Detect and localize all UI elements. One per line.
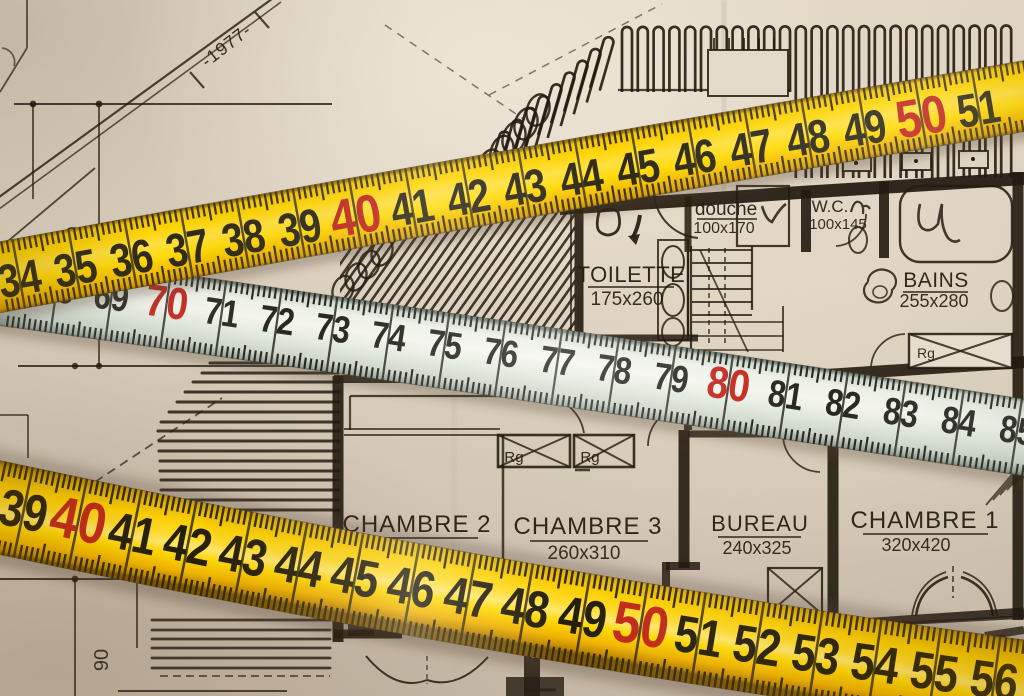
svg-text:BAINS: BAINS xyxy=(903,269,969,292)
svg-text:100x145: 100x145 xyxy=(809,216,867,233)
svg-text:255x280: 255x280 xyxy=(899,291,968,311)
svg-text:CHAMBRE 1: CHAMBRE 1 xyxy=(850,507,999,534)
svg-text:175x260: 175x260 xyxy=(591,289,664,310)
svg-text:Rg: Rg xyxy=(580,449,599,466)
svg-text:BUREAU: BUREAU xyxy=(711,511,809,536)
svg-text:TOILETTE: TOILETTE xyxy=(577,262,686,287)
svg-text:douche: douche xyxy=(695,199,757,220)
svg-text:320x420: 320x420 xyxy=(881,535,950,555)
svg-text:Rg: Rg xyxy=(917,345,935,361)
svg-text:W.C.: W.C. xyxy=(812,197,849,216)
svg-text:100x170: 100x170 xyxy=(693,220,754,237)
svg-text:90: 90 xyxy=(91,649,113,671)
svg-text:CHAMBRE 3: CHAMBRE 3 xyxy=(513,513,662,540)
svg-text:Rg: Rg xyxy=(504,449,523,466)
svg-text:240x325: 240x325 xyxy=(722,538,791,558)
